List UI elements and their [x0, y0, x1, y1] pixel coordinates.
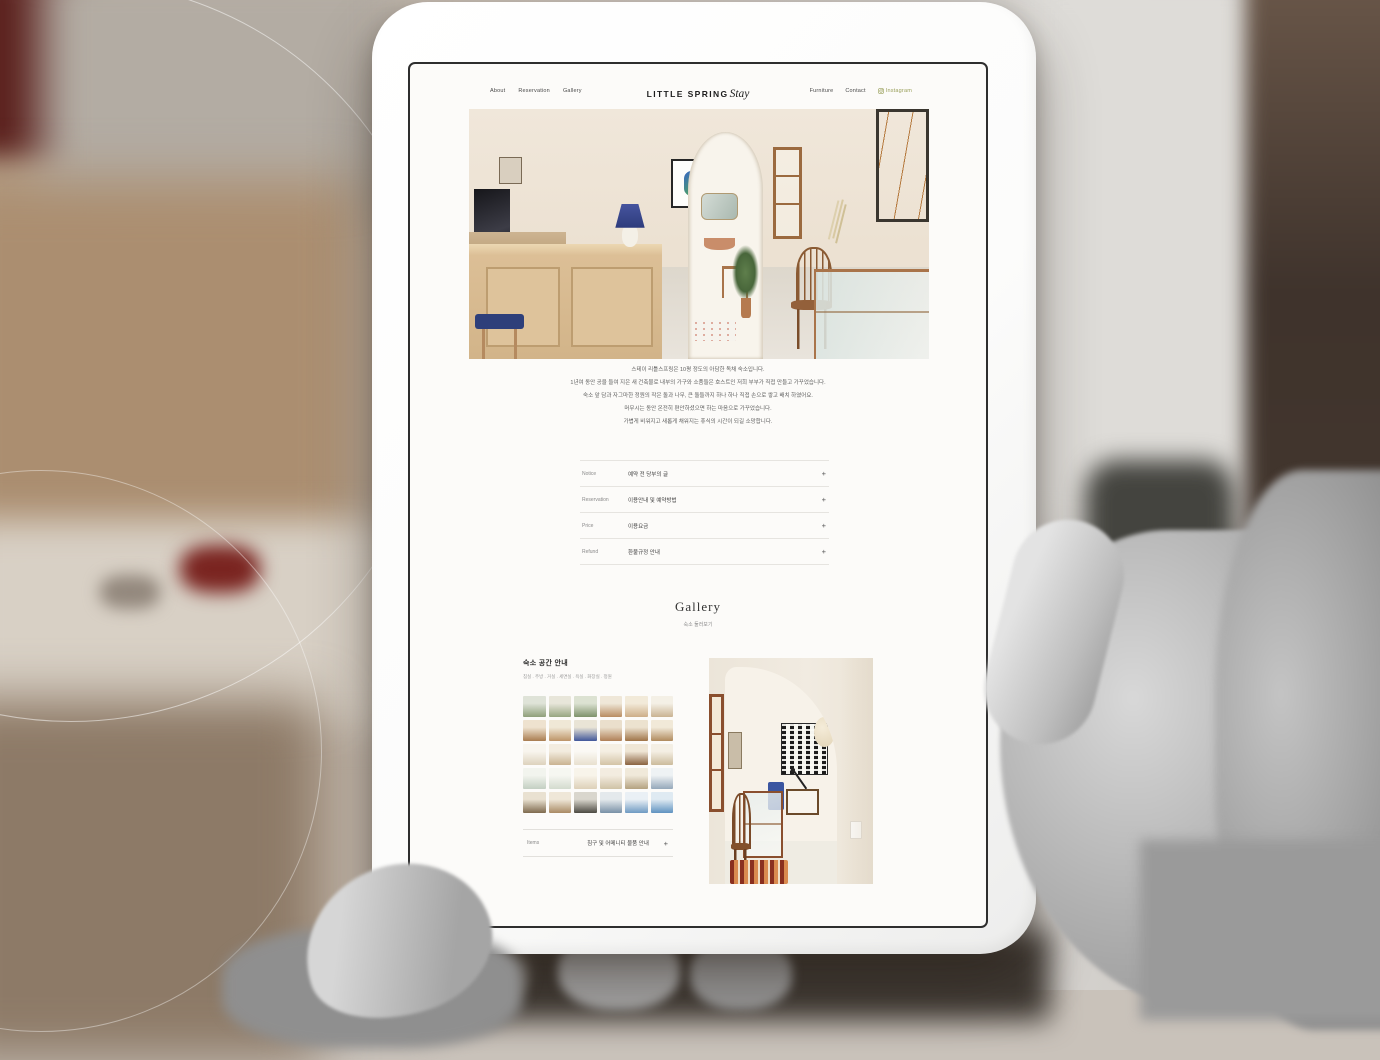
- dotted-rug: [692, 320, 736, 340]
- wall-mirror: [701, 193, 738, 220]
- glass-display-table: [814, 269, 929, 359]
- wall-shading: [840, 658, 873, 884]
- gallery-thumbnail[interactable]: [625, 768, 648, 789]
- gallery-thumbnail[interactable]: [523, 696, 546, 717]
- gallery-large-photo: [709, 658, 873, 884]
- accordion-label: Price: [580, 523, 628, 529]
- wooden-chair-back: [732, 793, 750, 849]
- gallery-thumbnail[interactable]: [600, 696, 623, 717]
- small-wall-art: [728, 732, 742, 769]
- nav-contact[interactable]: Contact: [845, 88, 865, 94]
- accordion-label: Notice: [580, 471, 628, 477]
- hero-photo: [469, 109, 929, 359]
- gallery-thumbnail[interactable]: [549, 768, 572, 789]
- thumbnail-grid: [523, 696, 673, 813]
- intro-line: 머무시는 동안 온전히 편안하셨으면 하는 마음으로 가꾸었습니다.: [410, 403, 986, 416]
- nav-furniture[interactable]: Furniture: [810, 88, 834, 94]
- plus-icon[interactable]: +: [664, 839, 668, 848]
- tablet-device: About Reservation Gallery LITTLE SPRINGS…: [372, 2, 1036, 954]
- small-framed-picture: [499, 157, 522, 184]
- accordion-row-reservation[interactable]: Reservation 이용안내 및 예약방법 +: [580, 486, 829, 512]
- accordion-row-notice[interactable]: Notice 예약 전 당부의 글 +: [580, 460, 829, 486]
- gallery-thumbnail[interactable]: [574, 768, 597, 789]
- intro-line: 1년여 동안 공을 들여 지은 새 건축물로 내부의 가구와 소품들은 호스트인…: [410, 377, 986, 390]
- accordion-value: 이용요금: [628, 522, 648, 530]
- logo-text: LITTLE SPRING: [647, 89, 729, 99]
- accordion-value: 환불규정 안내: [628, 548, 660, 556]
- accordion-row-price[interactable]: Price 이용요금 +: [580, 512, 829, 538]
- gallery-section-subtitle: 숙소 둘러보기: [410, 621, 986, 628]
- gallery-thumbnail[interactable]: [574, 696, 597, 717]
- gallery-section-title: Gallery: [410, 599, 986, 615]
- nav-instagram[interactable]: Instagram: [878, 88, 912, 94]
- nav-instagram-label: Instagram: [886, 88, 912, 94]
- terracotta-wall-sink: [704, 238, 734, 249]
- gallery-thumbnail[interactable]: [600, 768, 623, 789]
- gallery-thumbnail[interactable]: [574, 792, 597, 813]
- gallery-thumbnail[interactable]: [625, 744, 648, 765]
- gallery-thumbnail[interactable]: [549, 696, 572, 717]
- gallery-thumbnail[interactable]: [574, 744, 597, 765]
- accordion-value: 이용안내 및 예약방법: [628, 496, 677, 504]
- gallery-thumbnail[interactable]: [523, 720, 546, 741]
- gallery-thumbnail[interactable]: [549, 744, 572, 765]
- space-guide-column: 숙소 공간 안내 침실 . 주방 . 거실 . 세면실 . 욕실 . 화장실 .…: [523, 658, 673, 857]
- wall-shelf: [709, 694, 724, 812]
- right-hand-wrist: [1140, 840, 1380, 1020]
- wall-shelf: [773, 147, 803, 240]
- info-accordion: Notice 예약 전 당부의 글 + Reservation 이용안내 및 예…: [580, 460, 829, 565]
- intro-paragraph: 스테이 리틀스프링은 10평 정도의 아담한 독채 숙소입니다. 1년여 동안 …: [410, 364, 986, 429]
- potted-plant-leaves: [732, 245, 759, 300]
- gallery-thumbnail[interactable]: [574, 720, 597, 741]
- gallery-thumbnail[interactable]: [600, 720, 623, 741]
- plus-icon[interactable]: +: [822, 495, 826, 504]
- space-guide-subheading: 침실 . 주방 . 거실 . 세면실 . 욕실 . 화장실 . 정원: [523, 674, 673, 680]
- instagram-icon: [878, 88, 884, 94]
- gallery-thumbnail[interactable]: [523, 768, 546, 789]
- intro-line: 숙소 앞 담과 자그마한 정원의 작은 돌과 나무, 큰 돌들까지 하나 하나 …: [410, 390, 986, 403]
- accordion-value: 예약 전 당부의 글: [628, 470, 668, 478]
- gallery-thumbnail[interactable]: [651, 696, 674, 717]
- accordion-label: Reservation: [580, 497, 628, 503]
- accordion-row-items[interactable]: Items 침구 및 어메니티 물품 안내 +: [523, 829, 673, 857]
- counter-panel: [571, 267, 652, 347]
- gallery-thumbnail[interactable]: [651, 768, 674, 789]
- gallery-thumbnail[interactable]: [549, 792, 572, 813]
- logo-script-text: Stay: [730, 88, 750, 100]
- plus-icon[interactable]: +: [822, 547, 826, 556]
- accordion-label: Refund: [580, 549, 628, 555]
- intro-line: 가볍게 비워지고 새롭게 채워지는 휴식의 시간이 되길 소망합니다.: [410, 416, 986, 429]
- blue-woven-stool: [469, 314, 524, 359]
- patterned-rug: [730, 860, 788, 884]
- plant-pot: [741, 298, 752, 318]
- side-table: [786, 789, 819, 815]
- arch-doorway: [688, 132, 764, 360]
- site-navigation: About Reservation Gallery LITTLE SPRINGS…: [410, 84, 986, 104]
- accordion-value: 침구 및 어메니티 물품 안내: [563, 839, 673, 847]
- gallery-thumbnail[interactable]: [625, 720, 648, 741]
- gallery-thumbnail[interactable]: [600, 744, 623, 765]
- accordion-row-refund[interactable]: Refund 환불규정 안내 +: [580, 538, 829, 565]
- plus-icon[interactable]: +: [822, 469, 826, 478]
- gallery-thumbnail[interactable]: [625, 696, 648, 717]
- gallery-thumbnail[interactable]: [600, 792, 623, 813]
- gallery-thumbnail[interactable]: [625, 792, 648, 813]
- intro-line: 스테이 리틀스프링은 10평 정도의 아담한 독채 숙소입니다.: [410, 364, 986, 377]
- paper-lantern: [814, 717, 835, 747]
- tablet-screen: About Reservation Gallery LITTLE SPRINGS…: [408, 62, 988, 928]
- background-right-wall: [1020, 0, 1280, 530]
- plus-icon[interactable]: +: [822, 521, 826, 530]
- nav-right-group: Furniture Contact Instagram: [810, 88, 912, 94]
- gallery-thumbnail[interactable]: [523, 744, 546, 765]
- gallery-thumbnail[interactable]: [651, 744, 674, 765]
- gallery-thumbnail[interactable]: [651, 720, 674, 741]
- space-guide-heading: 숙소 공간 안내: [523, 658, 673, 668]
- accordion-label: Items: [523, 840, 563, 846]
- gallery-thumbnail[interactable]: [549, 720, 572, 741]
- large-framed-art: [876, 109, 929, 222]
- gallery-thumbnail[interactable]: [523, 792, 546, 813]
- gallery-thumbnail[interactable]: [651, 792, 674, 813]
